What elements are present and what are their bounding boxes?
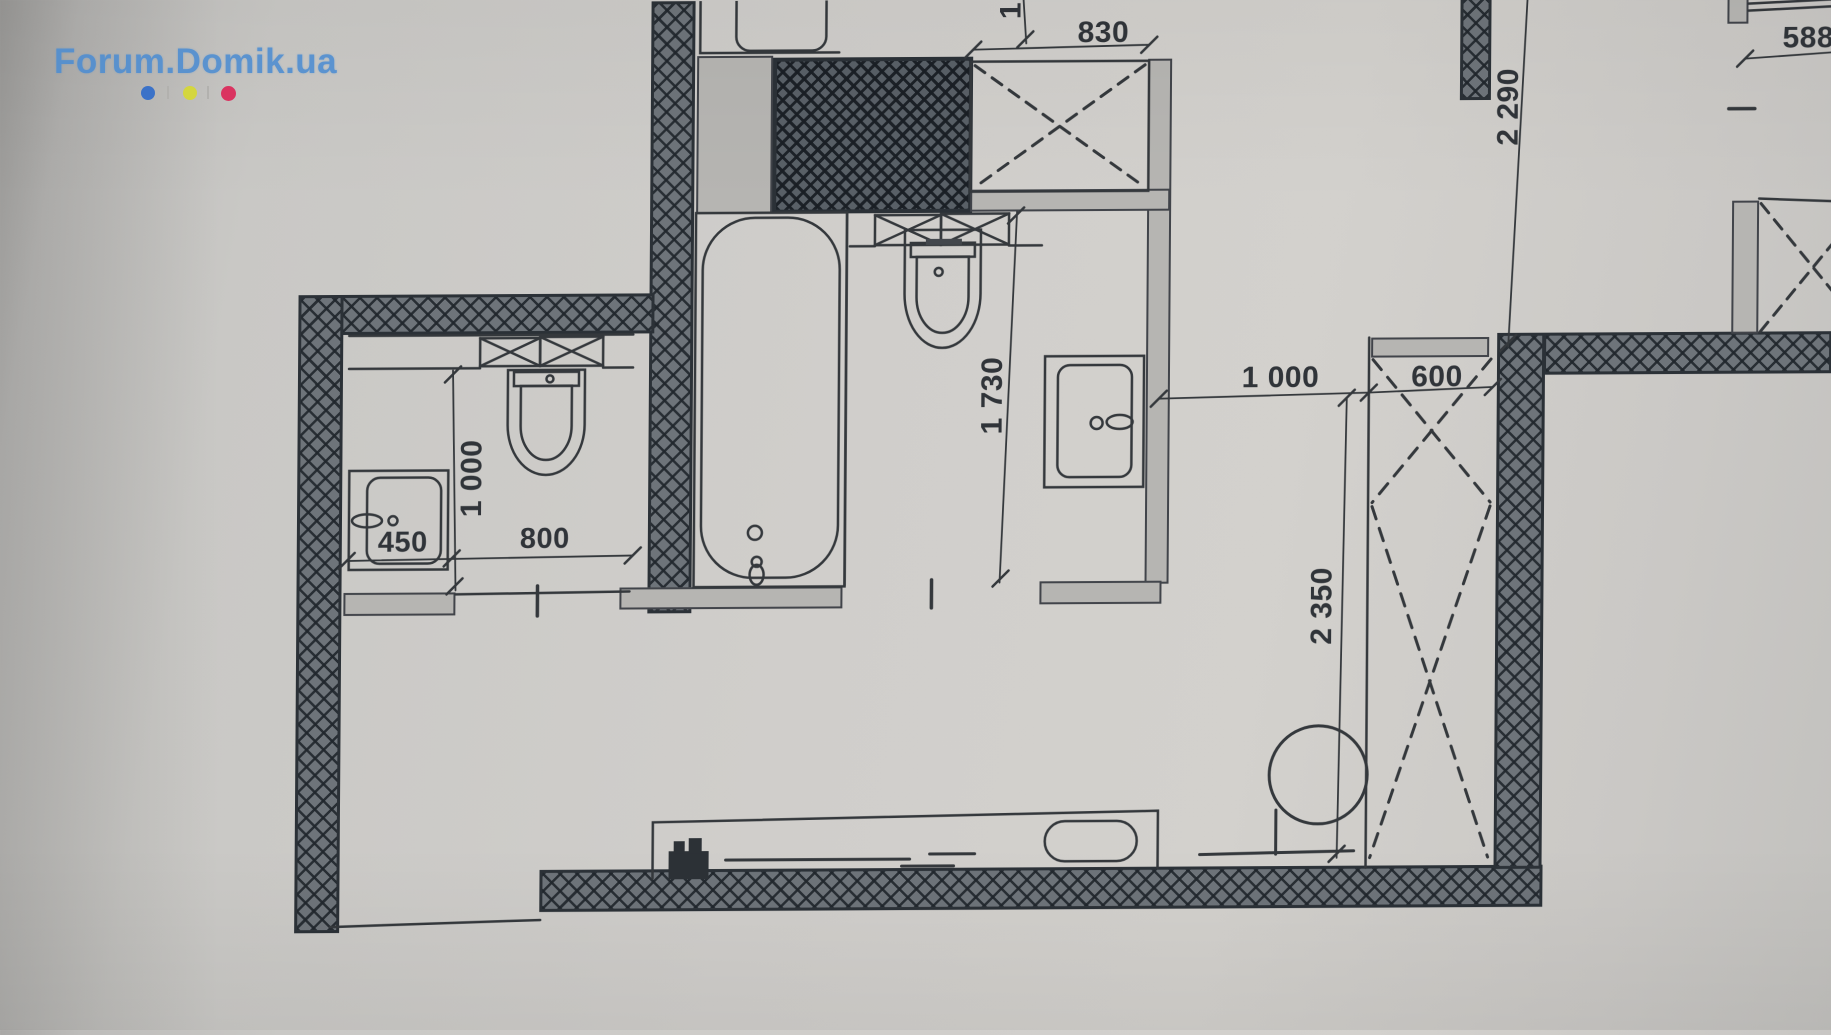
dim-label-2290: 2 290 — [1491, 52, 1526, 162]
dimension-lines — [345, 0, 1831, 863]
washing-machine — [970, 61, 1149, 192]
sink-right — [1044, 356, 1144, 488]
wall-lines-top-right — [1748, 0, 1831, 11]
dim-label-1000-wc: 1 000 — [455, 423, 490, 533]
dim-label-1730: 1 730 — [975, 341, 1010, 451]
counter-appliance-icon — [668, 838, 708, 879]
floor-plan: 830 1 588 2 290 1 730 1 000 2 350 1 000 … — [0, 0, 1831, 1035]
toilet-left — [507, 370, 585, 475]
dim-label-top-cut: 1 — [996, 0, 1026, 31]
wall-line-bath-right — [845, 212, 848, 585]
dim-label-588: 588 — [1773, 21, 1831, 55]
section-marks — [537, 109, 1754, 616]
dim-label-450: 450 — [368, 527, 438, 560]
logo-dot-red — [221, 86, 236, 101]
bathtub-drain-icon — [748, 526, 762, 540]
floor-line — [330, 920, 540, 927]
wardrobe-top-right — [1758, 198, 1831, 331]
door-label-smudge — [926, 239, 962, 245]
logo-dot-blue — [141, 86, 155, 100]
round-table — [1269, 726, 1368, 825]
toilet-right — [904, 230, 981, 348]
logo-dot-separator — [207, 86, 209, 99]
bench-line — [1200, 810, 1354, 855]
sink-right-tap-icon — [1091, 417, 1103, 429]
dim-label-830: 830 — [1063, 16, 1143, 50]
dim-label-800: 800 — [510, 523, 580, 556]
logo-dot-yellow — [183, 86, 197, 100]
dim-label-600: 600 — [1397, 360, 1477, 394]
top-washbasin — [700, 0, 840, 53]
wardrobe-right — [1366, 337, 1492, 868]
bathtub — [694, 212, 848, 587]
counter-sink — [1045, 821, 1137, 861]
logo-dot-separator — [167, 86, 169, 99]
plan-linework — [0, 0, 1831, 1035]
site-watermark: Forum.Domik.ua — [54, 42, 337, 82]
dim-label-2350: 2 350 — [1305, 551, 1340, 661]
kitchen-counter — [652, 811, 1157, 880]
dim-label-1000-hall: 1 000 — [1223, 361, 1338, 396]
